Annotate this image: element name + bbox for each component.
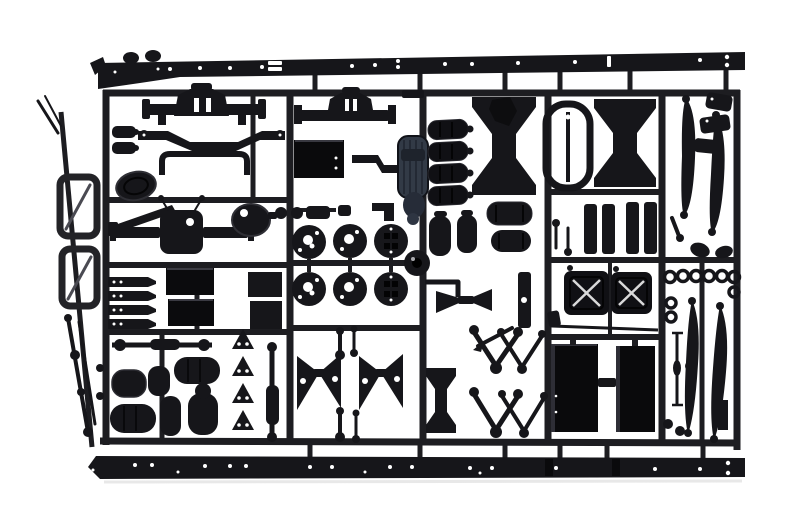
part-axle1-diff: [174, 89, 229, 116]
part-diff-cover: [232, 204, 270, 236]
part-ring-8: [666, 298, 676, 308]
part-ring-2: [678, 271, 689, 282]
part-toolbox-1: [551, 344, 598, 432]
part-toolbox-1-edge: [551, 344, 555, 432]
part-hub-plate-2-pad-4: [392, 291, 398, 297]
rail-top-hole-1: [114, 71, 117, 74]
rail-bottom-hole-7: [308, 465, 312, 469]
rail-top-hole-2: [157, 68, 160, 71]
part-thin-bar: [552, 326, 658, 330]
part-toolbox-2: [616, 346, 655, 432]
part-mudflap-4-hole-a: [113, 323, 116, 326]
part-crossmember-bowtie-1-bar: [313, 369, 327, 377]
part-hub-plate-2-dot-b: [390, 299, 393, 302]
part-rib-cylinder-1: [428, 119, 469, 140]
part-air-tank-e: [160, 396, 181, 436]
rail-bottom-joint-2: [612, 459, 620, 476]
part-link-rod-2-ball-a: [351, 326, 358, 333]
rail-bottom-hole-5: [228, 464, 232, 468]
part-v-stay-4-ball-a: [498, 390, 506, 398]
rail-top-hole-5: [228, 66, 232, 70]
rail-top-hole-7: [350, 64, 354, 68]
part-brake-drum-4-dot-b: [355, 278, 359, 282]
part-ring-1: [665, 272, 676, 283]
rail-top-hole-14: [573, 60, 577, 64]
part-mudflap-4-hole-b: [120, 323, 123, 326]
part-link-rod-3-ball-b: [335, 432, 345, 442]
part-hub-plate-1-pad-3: [384, 243, 390, 249]
rail-top-hole-17: [725, 63, 729, 67]
part-exhaust-u-pipe: [162, 154, 247, 175]
part-hub-plate-2-pad-1: [384, 281, 390, 287]
part-torque-rod-1-eye-b: [83, 427, 93, 437]
part-link-rod-2-ball-b: [350, 349, 358, 357]
part-mudflap-2-hole-a: [113, 295, 116, 298]
rail-top-hole-10: [396, 65, 400, 69]
part-axle2-flange-l: [294, 105, 302, 124]
rail-bottom-hole-16: [726, 461, 730, 465]
part-v-stay-2-apex: [517, 364, 527, 374]
part-brake-drum-1-hole: [303, 235, 313, 245]
part-ring-9: [666, 312, 676, 322]
part-link-rod-4-ball-b: [352, 435, 360, 443]
part-hub-plate-2-pad-3: [384, 291, 390, 297]
part-shock-absorber-eye-t: [267, 342, 277, 352]
rail-bottom-hole-4: [203, 464, 207, 468]
part-brake-drum-1-dot-a: [298, 248, 302, 252]
part-brake-drum-3-dot-a: [298, 295, 302, 299]
part-axle3-wire-1-tip: [158, 195, 164, 201]
rail-top-hole-16: [725, 55, 729, 59]
rail-bottom-hole-20: [479, 472, 482, 475]
part-tri-bracket-2-hole-b: [245, 369, 249, 373]
rail-bottom-shadow: [104, 481, 742, 482]
part-bracket-tr-1-hole: [711, 98, 714, 101]
part-shock-absorber-body: [266, 385, 279, 425]
part-rib-cylinder-4: [428, 185, 469, 206]
runner-outer-left-diagonal: [61, 112, 92, 447]
part-mudflap-1-hole-a: [113, 281, 116, 284]
part-hub-plate-2-dot-a: [390, 276, 393, 279]
rail-bottom-hole-10: [410, 465, 414, 469]
part-l-bracket: [372, 203, 394, 221]
part-axle3-flange-l: [110, 223, 116, 241]
part-h-bowtie-bar: [458, 296, 474, 304]
part-crossmember-bowtie-1-hole-a: [300, 378, 306, 384]
part-brake-drum-3-hole-b: [310, 291, 315, 296]
rail-top-slot-1: [268, 61, 282, 65]
part-v-stay-3-ball-b: [513, 389, 523, 399]
part-crossmember-bowtie-1-r: [319, 354, 341, 408]
part-ring-3: [691, 271, 702, 282]
runner-knob-2: [96, 392, 104, 400]
part-vert-tank-2-cap: [461, 210, 473, 216]
part-tri-bracket-1-hole-b: [245, 342, 249, 346]
part-driveshaft-sleeve: [150, 339, 180, 350]
part-tri-bracket-4-hole-a: [237, 423, 241, 427]
part-spool-panel-2: [594, 99, 656, 187]
part-hub-plate-1-pad-1: [384, 233, 390, 239]
part-air-tank-d: [110, 404, 156, 433]
part-torque-rod-1-eye-a: [64, 314, 72, 322]
part-axle2-diff-nub: [342, 87, 360, 94]
part-axle1-flange-l: [142, 99, 150, 119]
model-kit-photo: [0, 0, 800, 530]
rail-bottom-hole-6: [244, 464, 248, 468]
part-tri-bracket-4-hole-b: [245, 423, 249, 427]
part-v-stay-2-ball-a: [497, 328, 505, 336]
part-leaf-strip-2: [45, 96, 61, 126]
rail-bottom-hole-19: [364, 471, 367, 474]
part-small-bar: [402, 90, 424, 98]
part-hub-plate-1-pad-2: [392, 233, 398, 239]
part-air-tank-c: [174, 357, 220, 384]
part-tri-bracket-2-hole-a: [237, 369, 241, 373]
part-leaf-spring-3-eye-t: [688, 297, 696, 305]
part-axle1-flange-r: [258, 99, 266, 119]
part-link-rod-4-ball-a: [353, 410, 360, 417]
part-axle3-diff-box: [160, 210, 203, 254]
part-v-stay-1-apex: [490, 362, 502, 374]
part-clip-2: [112, 142, 136, 154]
part-hub-plate-2-pad-2: [392, 281, 398, 287]
rail-top-hole-8: [373, 63, 377, 67]
part-vert-strip-hole: [521, 297, 527, 303]
rail-top-hole-12: [470, 62, 474, 66]
part-pill-tank-2: [491, 230, 531, 252]
part-v-stay-1-ball-b: [513, 327, 523, 337]
part-vert-tank-1: [429, 216, 451, 256]
part-v-stay-3-ball-a: [469, 387, 479, 397]
part-air-tank-a: [112, 370, 146, 397]
part-leaf-spring-1-bump: [684, 151, 694, 161]
part-brake-drum-4-hole: [344, 282, 354, 292]
part-axle2-diff-slot-1: [345, 99, 349, 111]
rail-bottom-hole-18: [177, 471, 180, 474]
rail-bottom-hole-17: [726, 471, 730, 475]
part-side-box-1: [248, 272, 282, 297]
part-clip-1-eye: [133, 129, 139, 135]
part-toolbox-connector: [598, 378, 616, 387]
part-axle3-tube-l: [114, 227, 160, 238]
rail-bottom-hole-12: [490, 466, 494, 470]
part-clip-1: [112, 126, 136, 138]
rail-bottom-hole-11: [468, 466, 472, 470]
part-crossmember-bowtie-2-hole-b: [394, 376, 400, 382]
part-leaf-spring-1-eye-b: [680, 211, 688, 219]
part-crossmember-bowtie-2-bar: [375, 369, 389, 377]
part-rib-cylinder-2-nub: [467, 148, 474, 155]
part-hook-tr: [672, 218, 679, 236]
part-pill-tank-1: [487, 202, 532, 225]
part-driveshaft-uj-r: [198, 339, 210, 351]
part-hub-plate-1-pad-4: [392, 243, 398, 249]
part-s-hook-1-eye: [552, 219, 560, 227]
part-crossmember-bowtie-2-hole-a: [362, 378, 368, 384]
rail-bottom-hole-13: [554, 466, 558, 470]
part-foot-blob-2: [675, 426, 685, 436]
part-axle3-wire-2-tip: [199, 195, 205, 201]
part-bracket-tr-3: [693, 138, 718, 154]
rail-bottom-joint-1: [545, 459, 553, 476]
part-clip-2-eye: [133, 145, 139, 151]
part-axle1-bracket-1: [158, 114, 166, 125]
gate-toolbox-1: [570, 337, 576, 345]
part-leaf-spring-1-eye-t: [682, 95, 690, 103]
gate-toolbox-2: [632, 338, 638, 346]
part-tri-bracket-4: [232, 410, 254, 430]
rail-top-hole-15: [698, 58, 702, 62]
part-brake-drum-2-hole: [344, 234, 354, 244]
part-tri-bracket-1-hole-a: [237, 342, 241, 346]
part-v-stay-4-ball-b: [540, 392, 548, 400]
part-mudflap-1-hole-b: [120, 281, 123, 284]
part-hook-tr-ball: [676, 234, 684, 242]
part-brake-drum-3-hole: [303, 282, 313, 292]
part-shock-absorber-eye-b: [267, 432, 277, 442]
part-axle1-diff-nub: [191, 83, 212, 91]
rail-top-hole-11: [443, 62, 447, 66]
rail-bottom-hole-14: [653, 467, 657, 471]
part-axle3-diff-hole: [186, 218, 194, 226]
part-leaf-spring-2-eye-b: [708, 228, 716, 236]
part-foot-blob-1: [663, 419, 673, 429]
rail-bottom-hole-9: [388, 465, 392, 469]
part-leaf-spring-3-bump: [685, 361, 695, 371]
part-driveshaft-uj-l: [114, 339, 126, 351]
part-brake-drum-1-hole-b: [310, 244, 315, 249]
part-gearbox-snout: [407, 213, 419, 225]
part-s-hook-2-eye: [564, 248, 572, 256]
sprue-photo: [0, 0, 800, 530]
part-crossmember-bowtie-2-r: [381, 354, 403, 408]
part-tri-bracket-3-hole-a: [237, 396, 241, 400]
part-leaf-spring-4-eye-t: [716, 302, 724, 310]
part-axle1-bracket-2: [238, 114, 246, 125]
part-battery-box-1: [166, 268, 214, 295]
rail-bottom-hole-1: [92, 469, 95, 472]
rail-bottom-hole-8: [330, 465, 334, 469]
rail-top-tow-hook-2: [145, 50, 161, 62]
part-leaf-spring-2-bump: [714, 167, 724, 177]
part-axle1-diff-slot-1: [194, 98, 199, 112]
part-ring-4: [704, 271, 715, 282]
part-flap-strip-4: [644, 202, 657, 254]
part-mudflap-2-hole-b: [120, 295, 123, 298]
part-tri-bracket-2: [232, 356, 254, 376]
part-axle2-diff-slot-2: [353, 99, 357, 111]
part-air-tank-f-dome: [195, 383, 211, 399]
part-brake-rod-bulge: [673, 360, 681, 376]
part-front-axle-hole-r: [279, 134, 282, 137]
part-rib-cylinder-2: [428, 141, 469, 162]
part-jerry-can-1-cap: [567, 265, 573, 271]
part-hub-plate-1-dot-a: [390, 228, 393, 231]
part-bracket-tr-2-hole: [706, 120, 709, 123]
part-toolbox-1-speck-a: [555, 395, 558, 398]
part-vert-tank-2: [457, 215, 477, 253]
part-front-axle-beam: [138, 131, 285, 151]
part-ring-5: [717, 271, 728, 282]
part-hub-plate-1-dot-b: [390, 251, 393, 254]
part-tri-bracket-3: [232, 383, 254, 403]
part-crossmember-bowtie-1-hole-b: [332, 376, 338, 382]
part-link-rod-3-ball-a: [336, 407, 344, 415]
part-flap-strip-3: [626, 202, 639, 254]
part-fitting-bar: [306, 206, 330, 219]
part-v-stay-1-ball-a: [469, 325, 479, 335]
rail-top-hole-13: [516, 61, 520, 65]
part-rib-cylinder-1-nub: [467, 126, 474, 133]
part-tri-bracket-3-hole-b: [245, 396, 249, 400]
part-brake-drum-2-dot-b: [355, 230, 359, 234]
rail-top-hole-3: [168, 67, 172, 71]
part-axle2-flange-r: [388, 105, 396, 124]
part-diff-cover-hole: [240, 209, 248, 217]
part-fitting-knob-1: [275, 207, 287, 219]
rail-top-slot-2: [268, 67, 282, 71]
part-air-tank-f: [188, 393, 218, 435]
part-jerry-can-2-cap: [613, 266, 619, 272]
rail-bottom-hole-15: [698, 467, 702, 471]
part-fitting-clip: [338, 205, 351, 216]
part-link-rod-1-ball-a: [336, 327, 344, 335]
part-leaf-strip-1: [38, 101, 58, 133]
part-bracket-tr-2: [699, 114, 731, 134]
part-dark-box-hole-1: [335, 157, 338, 160]
part-flap-strip-1: [584, 204, 597, 254]
part-brake-drum-3-dot-b: [315, 278, 319, 282]
part-air-tank-b: [148, 366, 170, 396]
part-gearbox-patch: [401, 149, 425, 161]
rail-top-hole-4: [198, 66, 202, 70]
part-flap-strip-2: [602, 204, 615, 254]
part-toolbox-2-edge: [616, 346, 620, 432]
part-brake-drum-4-dot-a: [340, 295, 344, 299]
part-fitting-knob-2: [291, 207, 303, 219]
part-rib-cylinder-3-nub: [467, 170, 474, 177]
part-toolbox-1-speck-b: [555, 411, 558, 414]
part-axle2-diff: [326, 93, 375, 121]
part-battery-box-2: [168, 299, 214, 326]
part-vert-tank-1-cap: [434, 211, 447, 217]
rail-bottom-hole-2: [133, 463, 137, 467]
part-v-stay-3-apex: [490, 426, 502, 438]
part-mudflap-3-hole-b: [120, 309, 123, 312]
part-leaf-spring-4-eye-b: [710, 435, 718, 443]
part-blob-tr-1: [688, 240, 712, 260]
part-brake-drum-1-dot-b: [315, 231, 319, 235]
rail-top-slot-3: [607, 56, 611, 67]
part-torque-rod-1-bulge-b: [77, 388, 85, 396]
part-chassis-rail-bottom: [88, 456, 745, 479]
part-axle1-diff-slot-2: [206, 98, 211, 112]
part-dark-box-hole-2: [335, 167, 338, 170]
part-leaf-spring-3-eye-b: [684, 429, 692, 437]
rail-top-tow-hook-1: [123, 52, 139, 64]
runner-knob-1: [96, 364, 104, 372]
part-pulley-hub-glint: [411, 257, 415, 261]
part-fender-hole: [566, 115, 571, 120]
part-side-box-2: [250, 301, 282, 329]
part-gearbox-body: [398, 136, 428, 198]
part-front-axle-hole-l: [143, 134, 146, 137]
rail-top-hole-6: [260, 65, 264, 69]
part-mudflap-3-hole-a: [113, 309, 116, 312]
part-link-rod-1-ball-b: [335, 350, 345, 360]
part-v-stay-4-apex: [519, 428, 529, 438]
rail-top-hole-9: [396, 59, 400, 63]
part-hourglass-column: [426, 368, 456, 433]
rail-bottom-hole-3: [150, 463, 154, 467]
part-crossmember-bowtie-1-l: [297, 356, 319, 410]
part-torque-rod-1-bulge-a: [70, 350, 80, 360]
part-rib-cylinder-3: [428, 163, 469, 184]
part-v-stay-2-ball-b: [538, 330, 546, 338]
part-crossmember-bowtie-2-l: [359, 356, 381, 410]
part-brake-drum-2-dot-a: [340, 247, 344, 251]
